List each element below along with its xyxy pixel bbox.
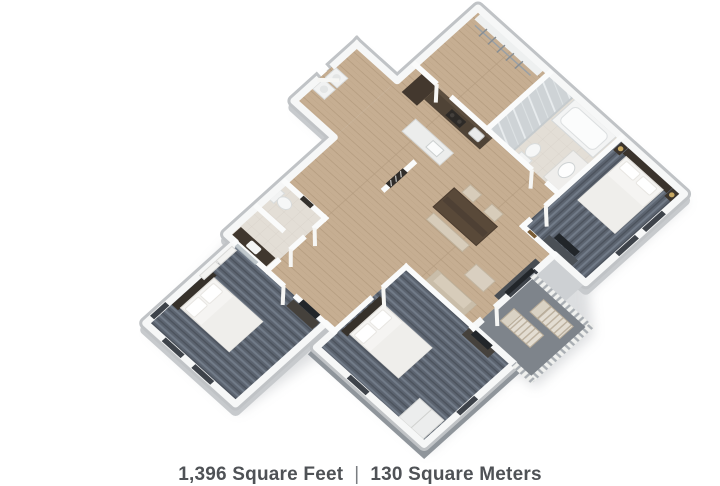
- caption-square-feet: 1,396 Square Feet: [178, 464, 343, 485]
- caption-separator: |: [354, 464, 359, 485]
- caption-square-meters: 130 Square Meters: [370, 464, 541, 485]
- caption: 1,396 Square Feet|130 Square Meters: [0, 464, 720, 486]
- floorplan-3d-render: [0, 0, 720, 480]
- floorplan-page: [0, 0, 720, 480]
